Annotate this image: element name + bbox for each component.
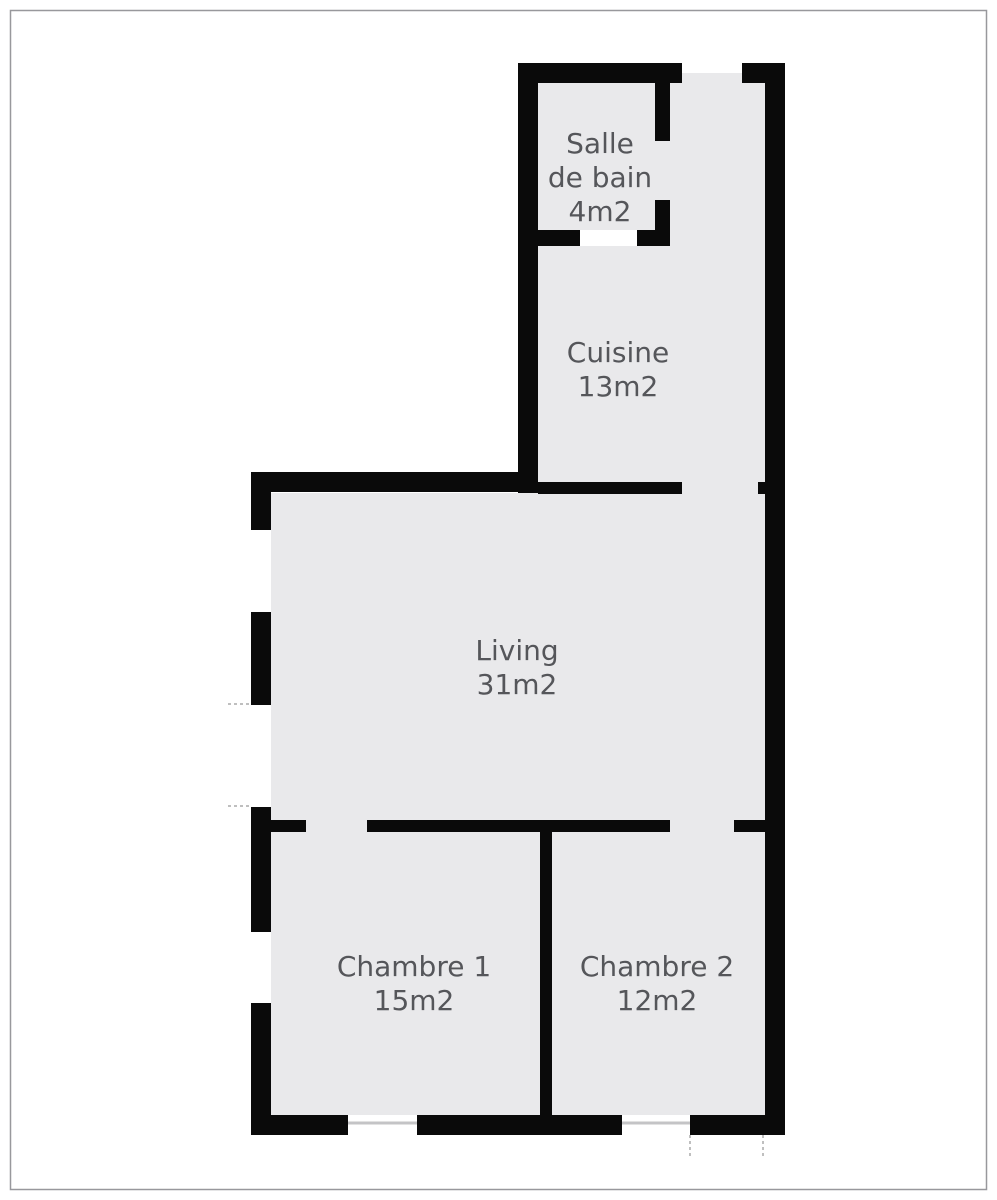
wall-divider-stub-left: [251, 820, 306, 832]
wall-kitchen-door-nub: [758, 482, 765, 494]
room-label-living: Living 31m2: [475, 634, 558, 702]
wall-bath-right-upper: [655, 83, 670, 141]
room-area: 15m2: [337, 984, 491, 1018]
floor-plan-drawing: [0, 0, 997, 1200]
room-name-line: Cuisine: [567, 336, 669, 370]
wall-bottom-seg1: [251, 1115, 348, 1135]
wall-left-seg2: [251, 612, 271, 705]
wall-right-exterior: [765, 63, 785, 1135]
wall-bedroom-divider: [540, 820, 552, 1120]
room-name-line: Living: [475, 634, 558, 668]
wall-divider-main: [367, 820, 670, 832]
room-area: 13m2: [567, 370, 669, 404]
wall-bath-bottom-left: [538, 230, 580, 246]
room-name-line: Chambre 2: [580, 950, 734, 984]
wall-divider-stub-right: [734, 820, 765, 832]
room-area: 4m2: [548, 195, 652, 229]
wall-bottom-seg3: [690, 1115, 785, 1135]
wall-bottom-seg2: [417, 1115, 622, 1135]
wall-kitchen-bottom: [538, 482, 682, 494]
room-name-line: de bain: [548, 161, 652, 195]
room-label-chambre-1: Chambre 1 15m2: [337, 950, 491, 1018]
wall-kitchen-left: [518, 63, 538, 493]
room-label-cuisine: Cuisine 13m2: [567, 336, 669, 404]
wall-living-top: [251, 472, 538, 492]
wall-bath-bottom-right: [637, 230, 670, 246]
room-area: 31m2: [475, 668, 558, 702]
floor-main-wing: [271, 493, 765, 1115]
room-label-chambre-2: Chambre 2 12m2: [580, 950, 734, 1018]
room-label-salle-de-bain: Salle de bain 4m2: [548, 127, 652, 229]
floor-plan-page: Salle de bain 4m2 Cuisine 13m2 Living 31…: [0, 0, 997, 1200]
room-name-line: Salle: [548, 127, 652, 161]
room-name-line: Chambre 1: [337, 950, 491, 984]
room-area: 12m2: [580, 984, 734, 1018]
bath-door-leaf: [580, 230, 637, 246]
wall-left-seg1: [251, 472, 271, 530]
wall-bath-top: [518, 63, 682, 83]
